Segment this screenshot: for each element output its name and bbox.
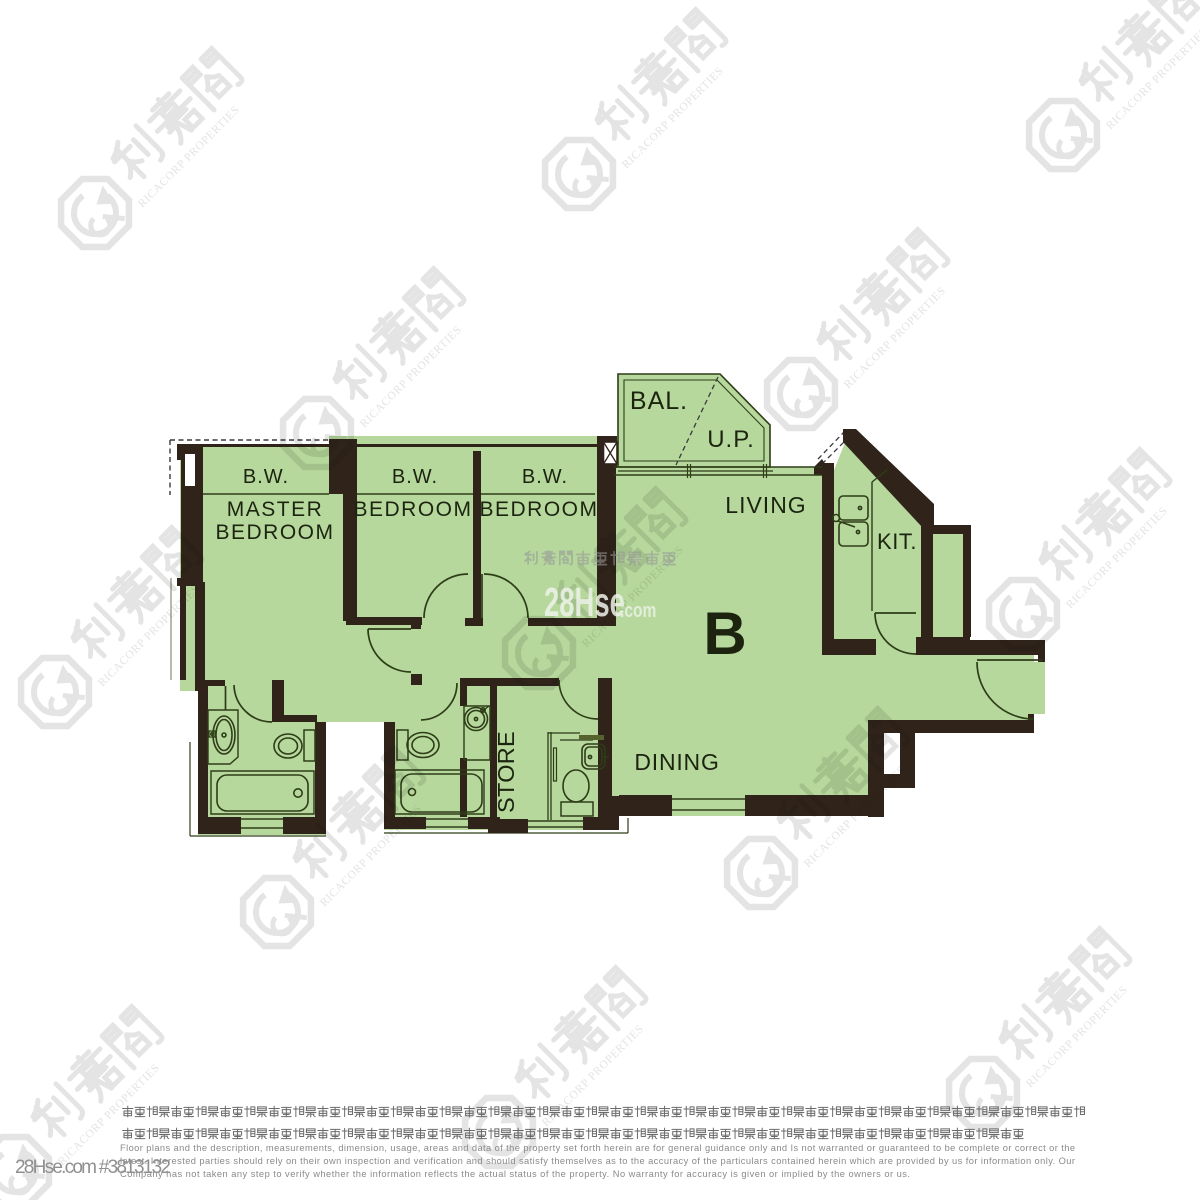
svg-text:MASTER: MASTER <box>227 498 324 521</box>
svg-text:DINING: DINING <box>634 749 719 775</box>
svg-text:28Hse: 28Hse <box>544 580 625 626</box>
svg-text:B.W.: B.W. <box>243 466 289 488</box>
svg-text:28Hse.com #3813132: 28Hse.com #3813132 <box>15 1157 171 1178</box>
svg-text:STORE: STORE <box>493 731 519 813</box>
svg-text:BEDROOM: BEDROOM <box>215 521 334 544</box>
svg-text:BEDROOM: BEDROOM <box>353 498 472 521</box>
svg-text:.com: .com <box>620 599 656 621</box>
svg-text:latest. Interested parties sho: latest. Interested parties should rely o… <box>120 1156 1075 1166</box>
svg-text:B.W.: B.W. <box>522 466 568 488</box>
svg-text:U.P.: U.P. <box>707 426 755 453</box>
svg-text:LIVING: LIVING <box>725 492 806 518</box>
svg-text:Company has not taken any step: Company has not taken any step to verify… <box>120 1169 910 1179</box>
svg-text:KIT.: KIT. <box>877 529 917 554</box>
svg-text:BEDROOM: BEDROOM <box>479 498 598 521</box>
svg-text:Floor plans and the descriptio: Floor plans and the description, measure… <box>120 1143 1075 1153</box>
svg-text:B.W.: B.W. <box>392 466 438 488</box>
svg-text:BAL.: BAL. <box>630 387 688 415</box>
svg-text:B: B <box>703 600 746 667</box>
